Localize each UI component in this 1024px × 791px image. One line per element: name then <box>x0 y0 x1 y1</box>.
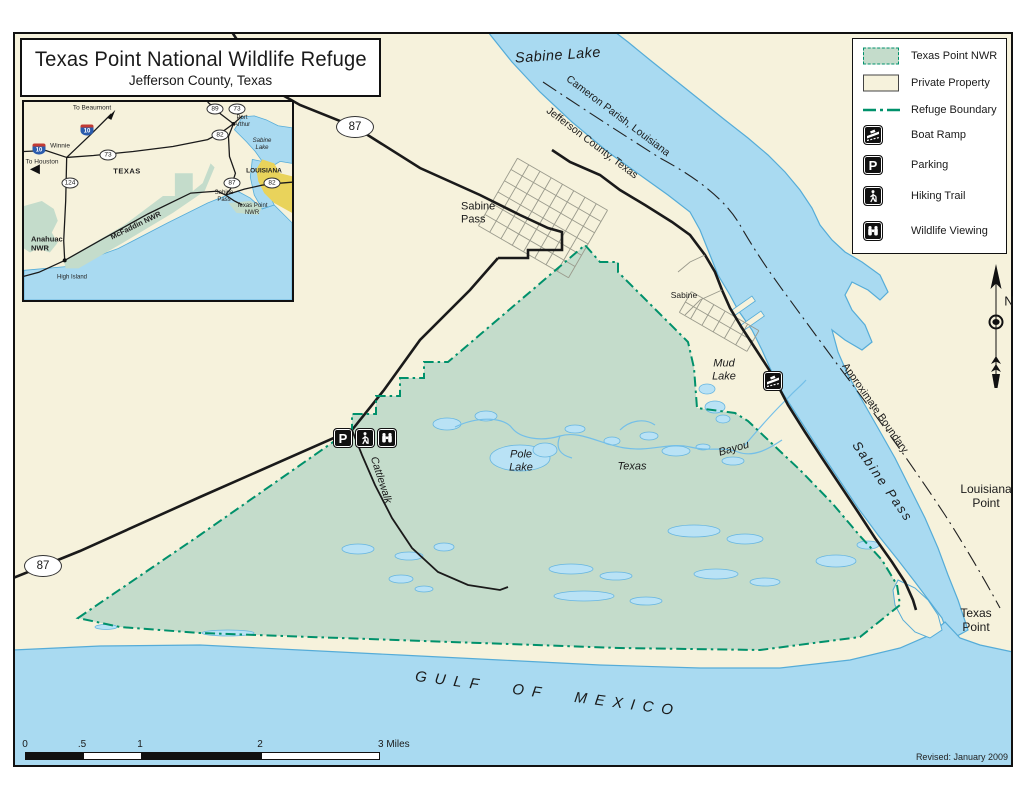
route-87-shield: 87 <box>24 555 62 577</box>
inset-port-arthur-label: Port Arthur <box>229 115 255 129</box>
inset-texas-label: TEXAS <box>113 168 141 177</box>
parking-icon: P <box>863 155 883 175</box>
hiking-trail-icon <box>355 428 375 448</box>
inset-route-124-shield: 124 <box>62 178 79 189</box>
legend-label: Hiking Trail <box>911 190 965 202</box>
texas-point-label: Texas Point <box>955 607 997 635</box>
inset-texas-point-nwr-label: Texas Point NWR <box>232 203 272 217</box>
scale-segment <box>141 752 262 760</box>
legend: Texas Point NWR Private Property Refuge … <box>852 38 1007 254</box>
inset-sabine-lake-label: Sabine Lake <box>249 138 275 152</box>
inset-high-island-dot <box>63 258 67 262</box>
scale-end-label: 3 Miles <box>378 739 410 750</box>
scale-tick-label: 0 <box>22 739 28 750</box>
legend-label: Private Property <box>911 77 990 89</box>
legend-row: Private Property <box>853 71 1006 95</box>
inset-i10-shield: 10 <box>33 144 46 155</box>
inset-route-87-shield: 87 <box>224 178 241 189</box>
map-subtitle: Jefferson County, Texas <box>129 73 272 88</box>
scale-segment <box>83 752 142 760</box>
sabine-town-label: Sabine <box>671 291 697 301</box>
inset-anahuac-nwr-label: Anahuac NWR <box>31 235 73 252</box>
legend-row: Hiking Trail <box>853 184 1006 208</box>
inset-high-island-label: High Island <box>57 275 87 282</box>
legend-row: Refuge Boundary <box>853 98 1006 122</box>
private-property-swatch-icon <box>863 75 899 92</box>
legend-label: Boat Ramp <box>911 129 966 141</box>
legend-row: P Parking <box>853 153 1006 177</box>
inset-map: To Beaumont Winnie To Houston TEXAS LOUI… <box>22 100 294 302</box>
boat-ramp-icon <box>863 125 883 145</box>
revised-date: Revised: January 2009 <box>880 752 1008 762</box>
scale-segment <box>261 752 380 760</box>
wildlife-viewing-icon <box>863 221 883 241</box>
texas-bayou-label-texas: Texas <box>618 461 647 474</box>
inset-louisiana-label: LOUISIANA <box>246 167 282 174</box>
boat-ramp-icon <box>763 371 783 391</box>
legend-label: Refuge Boundary <box>911 104 997 116</box>
sabine-pass-town-label: Sabine Pass <box>461 200 507 225</box>
scale-tick-label: 2 <box>257 739 263 750</box>
map-title: Texas Point National Wildlife Refuge <box>35 48 367 72</box>
compass-north-label: N <box>1004 295 1013 310</box>
legend-row: Boat Ramp <box>853 123 1006 147</box>
pole-lake-label: Pole Lake <box>505 448 537 473</box>
inset-to-houston-label: To Houston <box>26 158 59 165</box>
legend-label: Texas Point NWR <box>911 50 997 62</box>
louisiana-point-label: Louisiana Point <box>955 483 1017 511</box>
legend-row: Wildlife Viewing <box>853 219 1006 243</box>
inset-sabine-pass-label: Sabine Pass <box>210 190 238 204</box>
inset-i10-shield: 10 <box>81 125 94 136</box>
scale-bar: 0 .5 1 2 3 Miles <box>20 733 420 763</box>
mud-lake-label: Mud Lake <box>707 357 741 382</box>
inset-route-73-shield: 73 <box>229 104 246 115</box>
map-page: { "title": {"line1": "Texas Point Nation… <box>0 0 1024 791</box>
parking-glyph: P <box>339 432 348 445</box>
refuge-boundary-line-icon <box>863 107 903 113</box>
parking-glyph: P <box>869 159 878 172</box>
scale-tick-label: 1 <box>137 739 143 750</box>
title-box: Texas Point National Wildlife Refuge Jef… <box>20 38 381 97</box>
parking-icon: P <box>333 428 353 448</box>
scale-tick-label: .5 <box>78 739 86 750</box>
wildlife-viewing-icon <box>377 428 397 448</box>
route-87-shield: 87 <box>336 116 374 138</box>
inset-to-beaumont-label: To Beaumont <box>73 104 111 111</box>
scale-segment <box>25 752 84 760</box>
inset-route-82-shield: 82 <box>264 178 281 189</box>
inset-route-73-shield: 73 <box>100 150 117 161</box>
inset-route-82-shield: 82 <box>212 130 229 141</box>
refuge-swatch-icon <box>863 48 899 65</box>
inset-artwork <box>24 102 292 300</box>
inset-winnie-label: Winnie <box>50 142 70 149</box>
legend-label: Parking <box>911 159 948 171</box>
inset-route-89-shield: 89 <box>207 104 224 115</box>
legend-label: Wildlife Viewing <box>911 225 988 237</box>
hiking-trail-icon <box>863 186 883 206</box>
legend-row: Texas Point NWR <box>853 44 1006 68</box>
